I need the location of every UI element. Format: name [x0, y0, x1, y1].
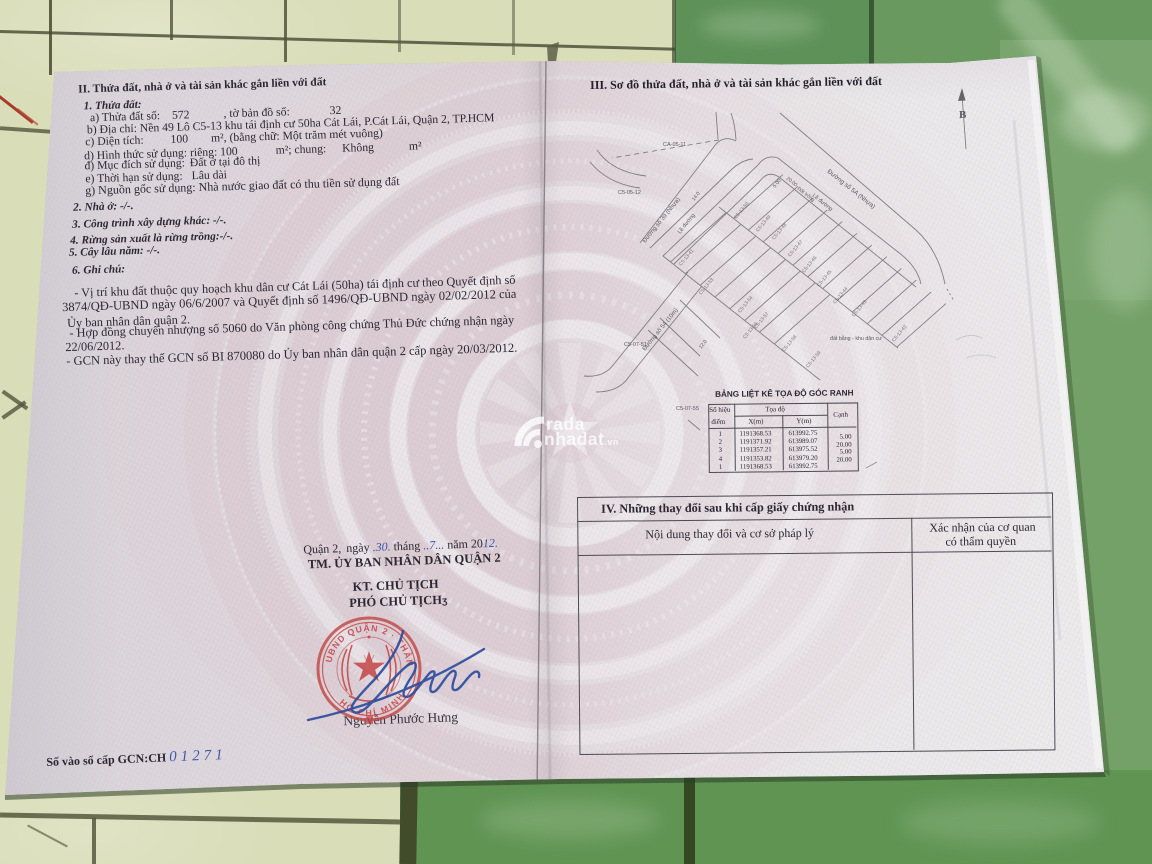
svg-text:C5-13-48: C5-13-48	[771, 222, 789, 241]
svg-text:C5-13-47: C5-13-47	[787, 239, 805, 258]
svg-text:C5-13-42: C5-13-42	[891, 324, 909, 343]
svg-text:C5-13-57: C5-13-57	[753, 311, 771, 330]
svg-text:C5-13-50: C5-13-50	[733, 201, 751, 220]
svg-text:14.0: 14.0	[691, 191, 702, 203]
svg-text:B: B	[959, 109, 967, 121]
svg-text:Đường số 5A (Nhựa): Đường số 5A (Nhựa)	[826, 167, 878, 211]
svg-text:C5-13-54: C5-13-54	[737, 295, 755, 314]
svg-text:5.00: 5.00	[772, 178, 783, 190]
svg-text:12.0: 12.0	[698, 339, 709, 351]
svg-text:C5-07-55: C5-07-55	[676, 406, 699, 412]
svg-text:C5-13-46: C5-13-46	[801, 255, 819, 274]
svg-text:20.00: 20.00	[785, 176, 799, 189]
svg-text:CA-05-11: CA-05-11	[663, 142, 686, 148]
svg-text:C5-05-12: C5-05-12	[618, 190, 641, 196]
svg-text:đất bằng - khu dân cư: đất bằng - khu dân cư	[830, 335, 882, 342]
svg-text:C5-13-59: C5-13-59	[805, 350, 823, 369]
svg-text:C5-13-58: C5-13-58	[781, 334, 799, 353]
svg-text:Lề đường: Lề đường	[811, 193, 834, 213]
svg-text:Lề đường: Lề đường	[677, 213, 697, 236]
svg-text:C5-13-45: C5-13-45	[816, 269, 834, 288]
svg-text:Đường số 54 (10m): Đường số 54 (10m)	[642, 308, 680, 353]
svg-text:C5-13-43: C5-13-43	[851, 299, 869, 318]
